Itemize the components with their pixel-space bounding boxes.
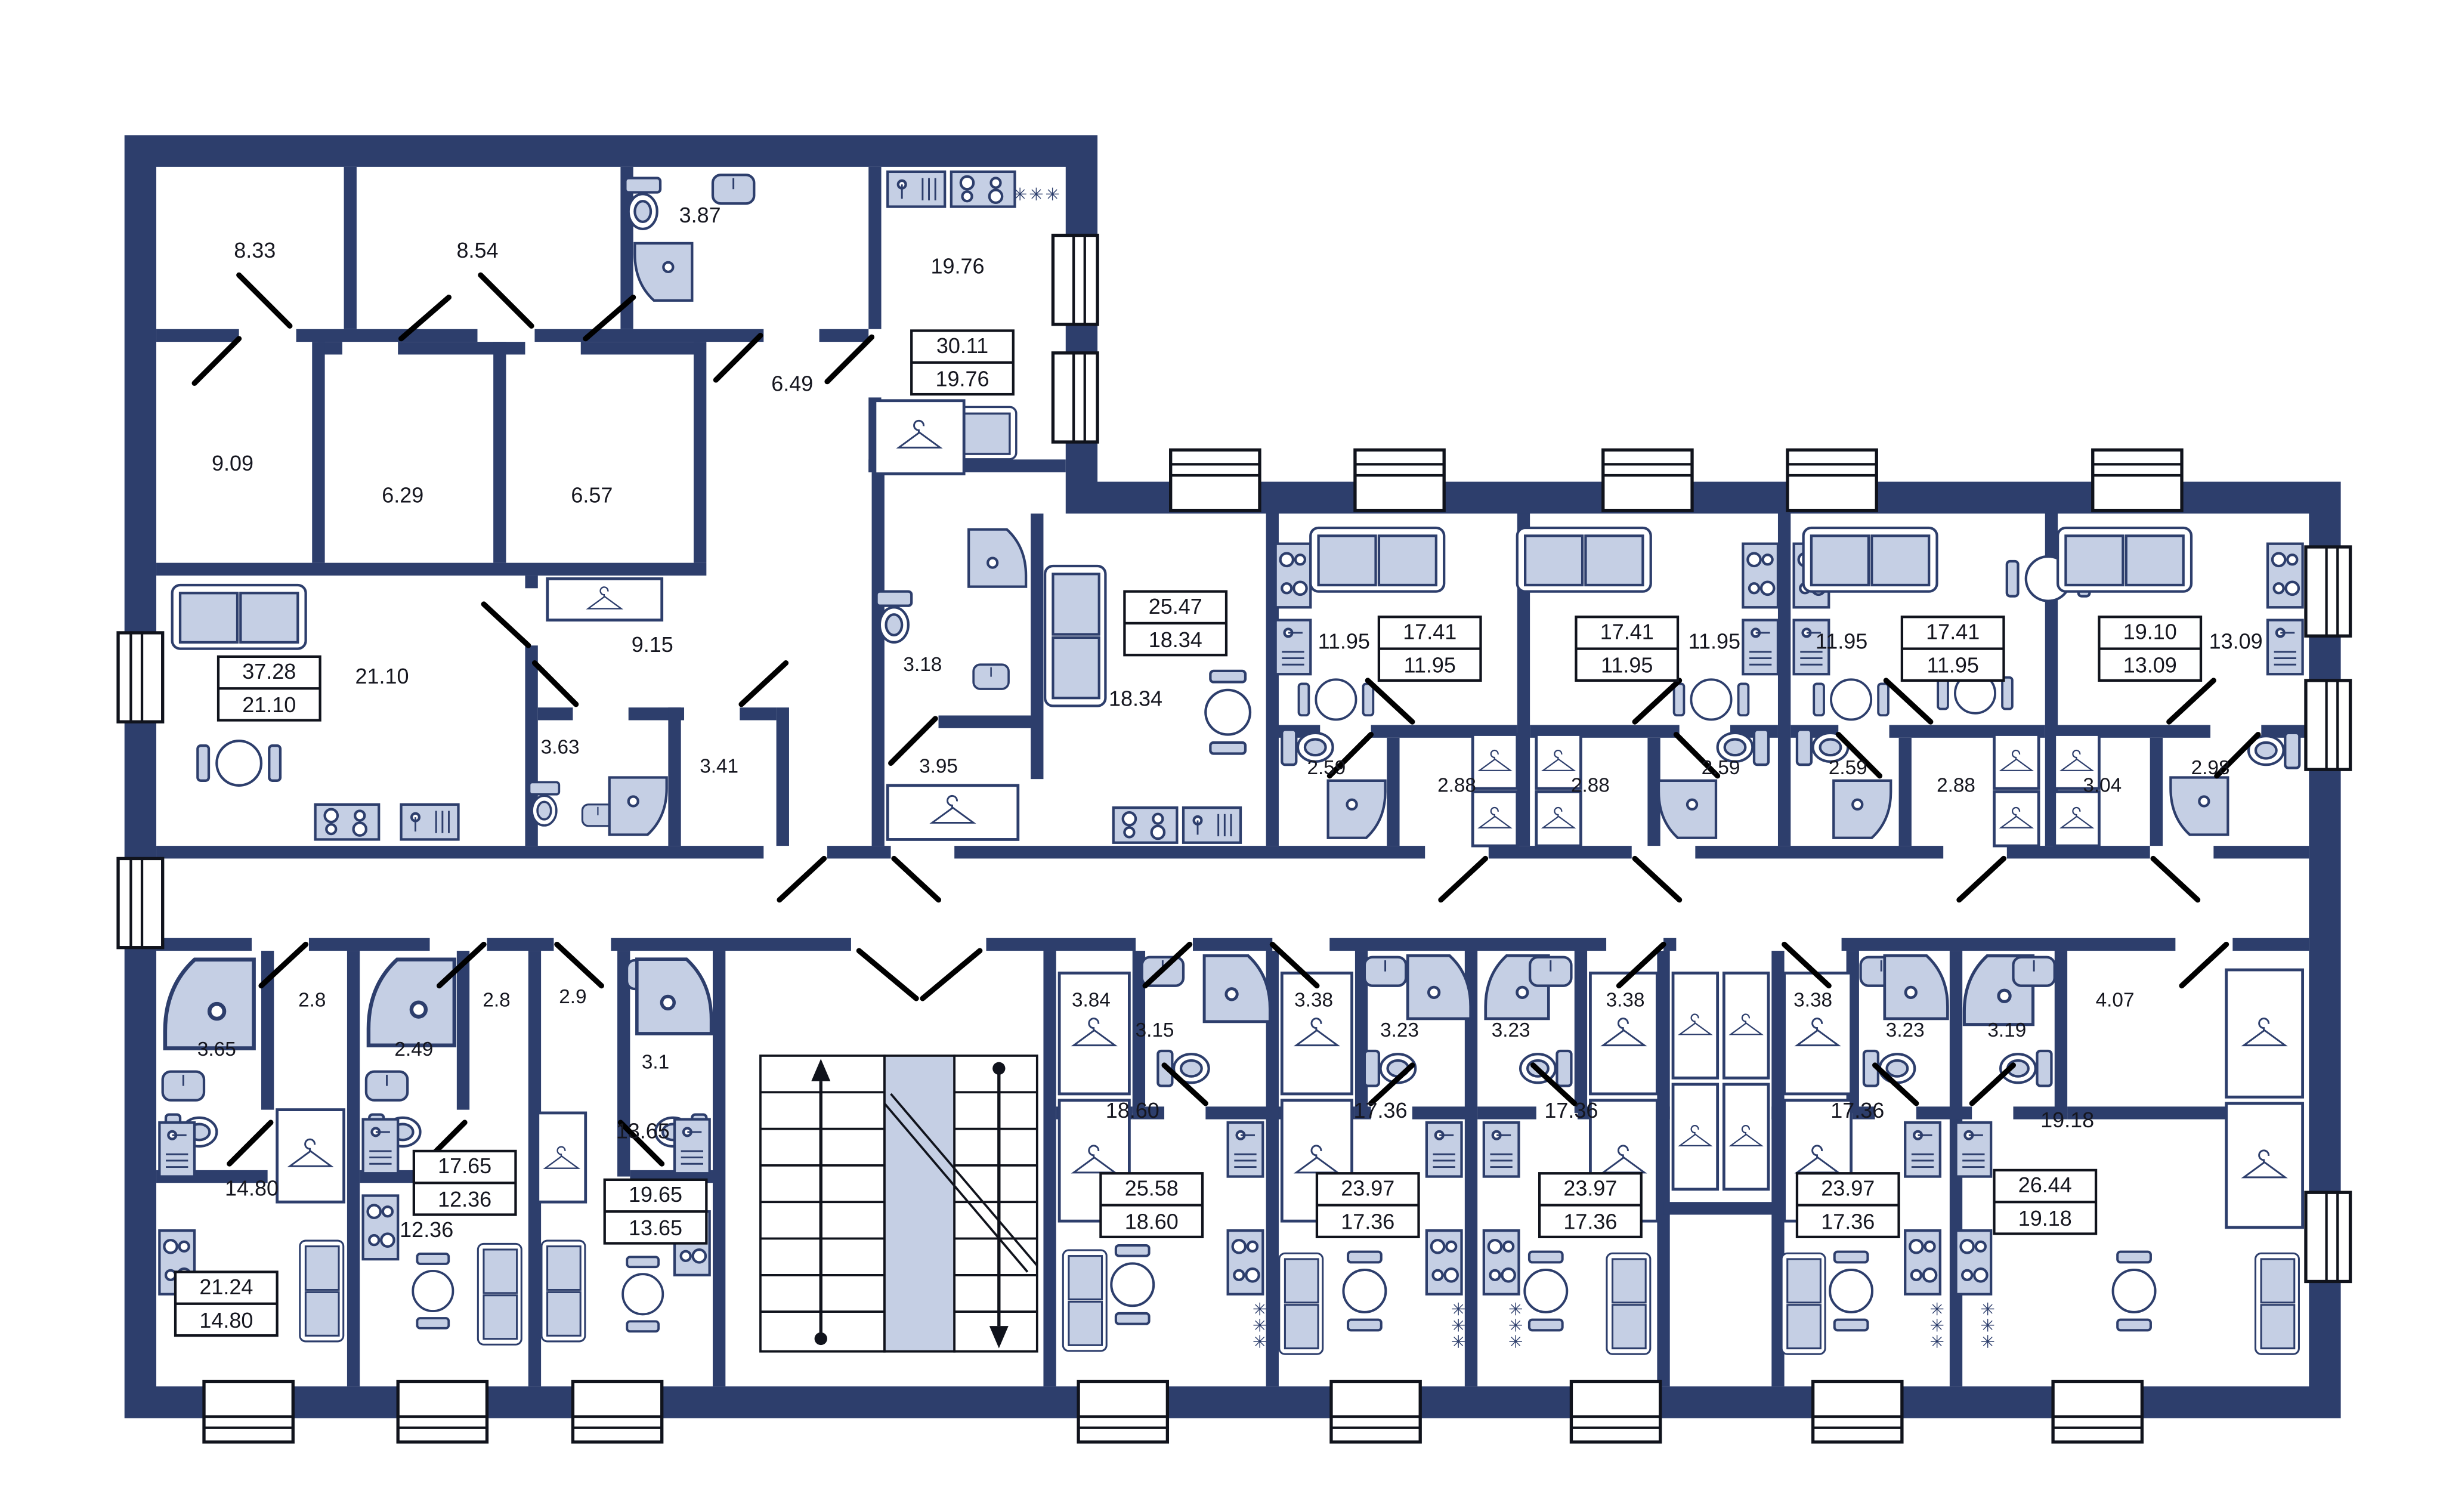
- stove-icon: [1956, 1230, 1991, 1294]
- svg-text:19.65: 19.65: [629, 1182, 682, 1207]
- sofa-icon: [1607, 1253, 1650, 1354]
- svg-text:23.97: 23.97: [1341, 1176, 1394, 1201]
- wardrobe: [2226, 1103, 2303, 1227]
- unit-area-box: 30.1119.76: [911, 330, 1013, 394]
- window-icon: [118, 858, 163, 947]
- svg-text:25.47: 25.47: [1149, 594, 1202, 619]
- kitchen-sink-icon: [1956, 1123, 1991, 1177]
- svg-text:17.65: 17.65: [438, 1154, 491, 1178]
- kitchen-sink-icon: [159, 1123, 194, 1177]
- room-area-label: 3.23: [1492, 1019, 1530, 1041]
- sink-icon: [1365, 957, 1406, 986]
- room-area-label: 19.76: [931, 253, 985, 278]
- svg-text:18.34: 18.34: [1149, 627, 1202, 652]
- window-icon: [1053, 236, 1097, 324]
- room-area-label: 2.88: [1437, 774, 1476, 796]
- room-area-label: 3.95: [919, 755, 958, 777]
- sink-icon: [713, 175, 754, 203]
- room-area-label: 2.88: [1937, 774, 1975, 796]
- kitchen-sink-icon: [1484, 1123, 1519, 1177]
- window-icon: [573, 1381, 661, 1442]
- stove-icon: [363, 1196, 398, 1260]
- sofa-icon: [1045, 566, 1105, 706]
- kitchen-sink-icon: [1905, 1123, 1940, 1177]
- sofa-icon: [1279, 1253, 1323, 1354]
- room-area-label: 3.23: [1380, 1019, 1419, 1041]
- window-icon: [118, 633, 163, 722]
- wardrobe: [1673, 973, 1718, 1078]
- fridge-icon: ✳✳✳: [1926, 1301, 1947, 1350]
- svg-text:25.58: 25.58: [1125, 1176, 1179, 1201]
- toilet-icon: [1520, 1051, 1571, 1086]
- stove-icon: [2268, 544, 2303, 608]
- window-icon: [1171, 450, 1260, 510]
- wardrobe: [548, 579, 662, 620]
- room-area-label: 2.59: [1702, 757, 1740, 779]
- room-area-label: 12.36: [400, 1217, 453, 1242]
- sofa-icon: [1782, 1253, 1825, 1354]
- room-area-label: 2.8: [483, 989, 510, 1011]
- sofa-icon: [1517, 528, 1651, 592]
- fridge-icon: ✳✳✳: [1448, 1301, 1468, 1350]
- svg-text:14.80: 14.80: [199, 1308, 253, 1332]
- room-area-label: 17.36: [1830, 1098, 1884, 1123]
- svg-text:12.36: 12.36: [438, 1187, 491, 1211]
- fridge-icon: ✳✳✳: [1249, 1301, 1269, 1350]
- room-area-label: 17.36: [1544, 1098, 1598, 1123]
- svg-text:18.60: 18.60: [1125, 1210, 1179, 1234]
- room-area-label: 6.57: [571, 483, 613, 507]
- sofa-icon: [478, 1244, 521, 1344]
- room-area-label: 2.9: [559, 986, 586, 1008]
- room-area-label: 3.63: [541, 737, 580, 759]
- wardrobe: [1473, 791, 1517, 846]
- room-area-label: 3.41: [700, 755, 738, 777]
- stove-icon: [1484, 1230, 1519, 1294]
- room-area-label: 3.15: [1136, 1019, 1174, 1041]
- room-area-label: 8.33: [234, 238, 276, 262]
- toilet-icon: [877, 592, 912, 642]
- sofa-icon: [2058, 528, 2191, 592]
- window-icon: [1078, 1381, 1167, 1442]
- window-icon: [1355, 450, 1444, 510]
- wardrobe: [875, 401, 964, 474]
- room-area-label: 3.87: [679, 203, 721, 227]
- stove-icon: [1743, 544, 1778, 608]
- unit-area-box: 17.6512.36: [414, 1151, 516, 1215]
- stove-icon: [1427, 1230, 1462, 1294]
- svg-text:37.28: 37.28: [242, 659, 296, 684]
- svg-text:17.36: 17.36: [1341, 1210, 1394, 1234]
- room-area-label: 3.38: [1294, 989, 1333, 1011]
- room-area-label: 2.59: [1307, 757, 1346, 779]
- floor-plan: ✳✳✳: [0, 0, 2443, 1512]
- wardrobe: [1724, 1084, 1768, 1189]
- kitchen-sink-icon: [1228, 1123, 1263, 1177]
- fridge-icon: ✳✳✳: [1977, 1301, 1997, 1350]
- unit-area-box: 17.4111.95: [1902, 617, 2004, 681]
- svg-text:26.44: 26.44: [2018, 1173, 2072, 1197]
- svg-text:17.41: 17.41: [1403, 620, 1456, 644]
- unit-area-box: 26.4419.18: [1994, 1170, 2096, 1234]
- wardrobe: [1673, 1084, 1718, 1189]
- sink-icon: [163, 1072, 204, 1100]
- room-area-label: 21.10: [355, 664, 409, 688]
- unit-area-box: 23.9717.36: [1539, 1173, 1641, 1237]
- sofa-icon: [2256, 1253, 2299, 1354]
- unit-area-box: 19.6513.65: [605, 1180, 707, 1244]
- stove-icon: [951, 172, 1015, 207]
- room-area-label: 3.38: [1793, 989, 1832, 1011]
- svg-text:30.11: 30.11: [936, 333, 988, 358]
- window-icon: [1053, 353, 1097, 442]
- kitchen-sink-icon: [401, 805, 459, 840]
- window-icon: [2306, 681, 2351, 769]
- room-area-label: 19.18: [2040, 1108, 2094, 1132]
- room-area-label: 18.34: [1109, 687, 1162, 711]
- kitchen-sink-icon: [675, 1120, 710, 1174]
- room-area-label: 2.98: [2191, 757, 2230, 779]
- toilet-icon: [625, 178, 660, 229]
- wardrobe: [1536, 791, 1581, 846]
- room-area-label: 3.23: [1886, 1019, 1925, 1041]
- wardrobe: [1724, 973, 1768, 1078]
- window-icon: [1331, 1381, 1420, 1442]
- room-area-label: 11.95: [1689, 629, 1740, 654]
- room-area-label: 14.80: [225, 1176, 279, 1201]
- sink-icon: [2013, 957, 2054, 986]
- sink-icon: [366, 1072, 407, 1100]
- kitchen-sink-icon: [1427, 1123, 1462, 1177]
- svg-text:23.97: 23.97: [1821, 1176, 1875, 1201]
- stairwell: [760, 1056, 1037, 1352]
- wardrobe: [277, 1110, 344, 1202]
- window-icon: [2053, 1381, 2142, 1442]
- room-area-label: 3.65: [197, 1038, 236, 1060]
- kitchen-sink-icon: [2268, 620, 2303, 675]
- unit-area-box: 25.4718.34: [1124, 592, 1226, 655]
- sofa-icon: [172, 585, 306, 649]
- wardrobe: [1994, 791, 2039, 846]
- kitchen-sink-icon: [1276, 620, 1311, 675]
- room-area-label: 6.29: [382, 483, 423, 507]
- room-area-label: 9.09: [212, 451, 253, 475]
- room-area-label: 2.8: [298, 989, 326, 1011]
- svg-text:17.36: 17.36: [1821, 1210, 1875, 1234]
- kitchen-sink-icon: [887, 172, 945, 207]
- window-icon: [1603, 450, 1692, 510]
- room-area-label: 2.88: [1571, 774, 1610, 796]
- room-area-label: 9.15: [632, 632, 673, 657]
- svg-text:17.41: 17.41: [1600, 620, 1654, 644]
- wardrobe: [2055, 791, 2099, 846]
- sofa-icon: [542, 1241, 585, 1341]
- kitchen-sink-icon: [1743, 620, 1778, 675]
- sink-icon: [973, 664, 1009, 689]
- unit-area-box: 19.1013.09: [2099, 617, 2201, 681]
- wardrobe: [1473, 735, 1517, 789]
- room-area-label: 18.60: [1106, 1098, 1159, 1123]
- fridge-icon: ✳✳✳: [1013, 184, 1062, 205]
- wardrobe: [1994, 735, 2039, 789]
- room-area-label: 2.59: [1829, 757, 1867, 779]
- room-area-label: 3.38: [1606, 989, 1645, 1011]
- window-icon: [2093, 450, 2182, 510]
- room-area-label: 17.36: [1354, 1098, 1408, 1123]
- sofa-icon: [1804, 528, 1937, 592]
- unit-area-box: 25.5818.60: [1100, 1173, 1202, 1237]
- unit-area-box: 37.2821.10: [218, 657, 320, 721]
- svg-text:19.76: 19.76: [935, 367, 989, 391]
- room-area-label: 13.65: [616, 1119, 670, 1143]
- room-area-label: 2.49: [394, 1038, 433, 1060]
- wardrobe: [887, 786, 1018, 840]
- room-area-label: 13.09: [2209, 629, 2263, 654]
- svg-text:21.10: 21.10: [242, 692, 296, 717]
- window-icon: [2306, 547, 2351, 636]
- svg-text:19.18: 19.18: [2018, 1206, 2072, 1230]
- svg-text:17.36: 17.36: [1563, 1210, 1617, 1234]
- room-area-label: 11.95: [1318, 629, 1370, 654]
- room-area-label: 4.07: [2096, 989, 2135, 1011]
- kitchen-sink-icon: [1183, 808, 1241, 843]
- svg-text:19.10: 19.10: [2123, 620, 2177, 644]
- svg-text:21.24: 21.24: [199, 1275, 253, 1299]
- room-area-label: 3.04: [2083, 774, 2122, 796]
- room-area-label: 11.95: [1816, 629, 1867, 654]
- room-area-label: 3.84: [1072, 989, 1111, 1011]
- room-area-label: 3.18: [903, 654, 942, 676]
- window-icon: [1788, 450, 1876, 510]
- sofa-icon: [1310, 528, 1444, 592]
- stove-icon: [316, 805, 379, 840]
- unit-area-box: 23.9717.36: [1317, 1173, 1419, 1237]
- sofa-icon: [1063, 1250, 1106, 1351]
- svg-text:11.95: 11.95: [1601, 653, 1653, 678]
- svg-text:11.95: 11.95: [1927, 653, 1979, 678]
- window-icon: [2306, 1192, 2351, 1281]
- toilet-icon: [530, 782, 559, 825]
- window-icon: [398, 1381, 487, 1442]
- fridge-icon: ✳✳✳: [1505, 1301, 1525, 1350]
- window-icon: [1813, 1381, 1902, 1442]
- unit-area-box: 23.9717.36: [1797, 1173, 1899, 1237]
- svg-text:11.95: 11.95: [1404, 653, 1456, 678]
- room-area-label: 3.1: [642, 1051, 669, 1073]
- room-area-label: 3.19: [1987, 1019, 2026, 1041]
- svg-text:13.65: 13.65: [629, 1216, 682, 1240]
- stove-icon: [1114, 808, 1177, 843]
- unit-area-box: 21.2414.80: [175, 1272, 277, 1335]
- window-icon: [1571, 1381, 1660, 1442]
- room-area-label: 6.49: [771, 372, 813, 396]
- window-icon: [204, 1381, 293, 1442]
- unit-area-box: 17.4111.95: [1379, 617, 1481, 681]
- room-area-label: 8.54: [456, 238, 498, 262]
- unit-area-box: 17.4111.95: [1576, 617, 1678, 681]
- svg-text:17.41: 17.41: [1926, 620, 1980, 644]
- svg-text:23.97: 23.97: [1563, 1176, 1617, 1201]
- wardrobe: [538, 1113, 586, 1202]
- wardrobe: [2226, 970, 2303, 1097]
- stove-icon: [1228, 1230, 1263, 1294]
- sink-icon: [1530, 957, 1571, 986]
- svg-text:13.09: 13.09: [2123, 653, 2177, 678]
- stove-icon: [1276, 544, 1311, 608]
- sofa-icon: [300, 1241, 344, 1341]
- kitchen-sink-icon: [363, 1120, 398, 1174]
- stove-icon: [1905, 1230, 1940, 1294]
